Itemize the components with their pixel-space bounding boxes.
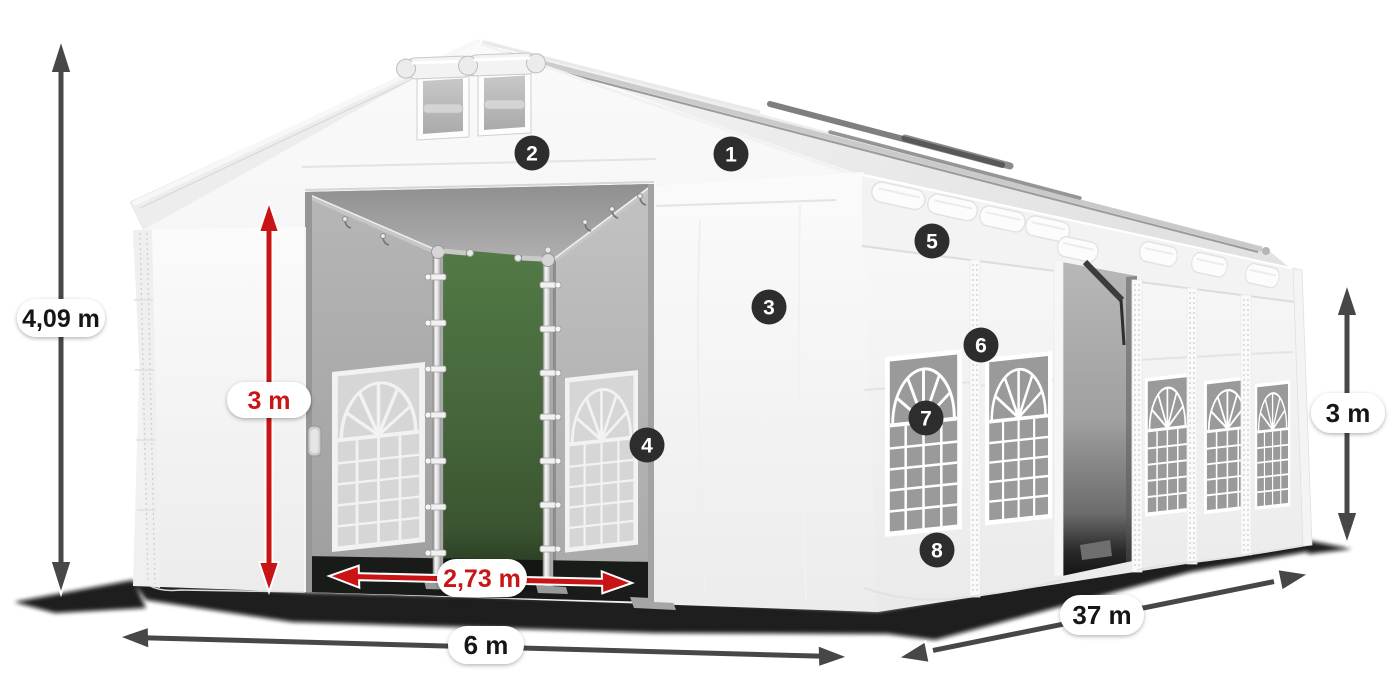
callout-badge-5: 5 <box>915 224 950 259</box>
overall-height-dimension: 4,09 m <box>17 40 105 594</box>
callout-badge-2: 2 <box>515 136 550 171</box>
svg-text:1: 1 <box>725 144 737 167</box>
svg-text:7: 7 <box>920 408 932 431</box>
door-handle <box>308 426 321 456</box>
arrow-left-icon <box>898 641 930 663</box>
svg-text:3 m: 3 m <box>1326 398 1371 428</box>
tent-illustration: 4,09 m 3 m 2,73 m <box>0 0 1400 700</box>
svg-text:8: 8 <box>931 540 943 563</box>
svg-text:4: 4 <box>641 435 653 458</box>
side-length-label: 37 m <box>1060 595 1144 635</box>
svg-text:5: 5 <box>926 231 938 254</box>
vent-roller-icon <box>458 52 546 76</box>
svg-text:3: 3 <box>763 297 775 320</box>
entrance-width-label: 2,73 m <box>437 559 527 597</box>
side-window <box>1146 375 1188 515</box>
svg-text:4,09 m: 4,09 m <box>22 305 100 333</box>
side-window <box>987 353 1050 522</box>
callout-badge-6: 6 <box>964 328 999 363</box>
wall-height-label: 3 m <box>1311 393 1385 433</box>
tent-body <box>130 38 1312 612</box>
callout-badge-8: 8 <box>920 533 955 568</box>
interior-window <box>567 373 635 550</box>
wall-height-dimension: 3 m <box>1311 284 1385 544</box>
entrance-height-label: 3 m <box>227 382 311 418</box>
svg-text:6: 6 <box>975 335 987 358</box>
callout-badge-7: 7 <box>909 401 944 436</box>
callout-badge-3: 3 <box>752 290 787 325</box>
arrow-right-icon <box>1277 569 1309 591</box>
entrance-interior <box>305 182 676 610</box>
open-side-section <box>1062 262 1137 576</box>
svg-text:2: 2 <box>526 143 538 166</box>
callout-badge-1: 1 <box>714 137 749 172</box>
interior-window <box>335 365 422 549</box>
svg-text:2,73 m: 2,73 m <box>443 565 521 593</box>
side-window <box>1256 382 1289 508</box>
svg-text:3 m: 3 m <box>247 387 290 415</box>
front-width-label: 6 m <box>448 626 524 664</box>
svg-text:37 m: 37 m <box>1072 600 1131 630</box>
rear-opening-view <box>438 248 550 592</box>
svg-text:6 m: 6 m <box>464 630 509 660</box>
right-door-panel <box>654 172 884 612</box>
overall-height-label: 4,09 m <box>17 299 105 337</box>
callout-badge-4: 4 <box>630 428 665 463</box>
side-window <box>887 352 959 534</box>
tent-diagram: 4,09 m 3 m 2,73 m <box>0 0 1400 700</box>
